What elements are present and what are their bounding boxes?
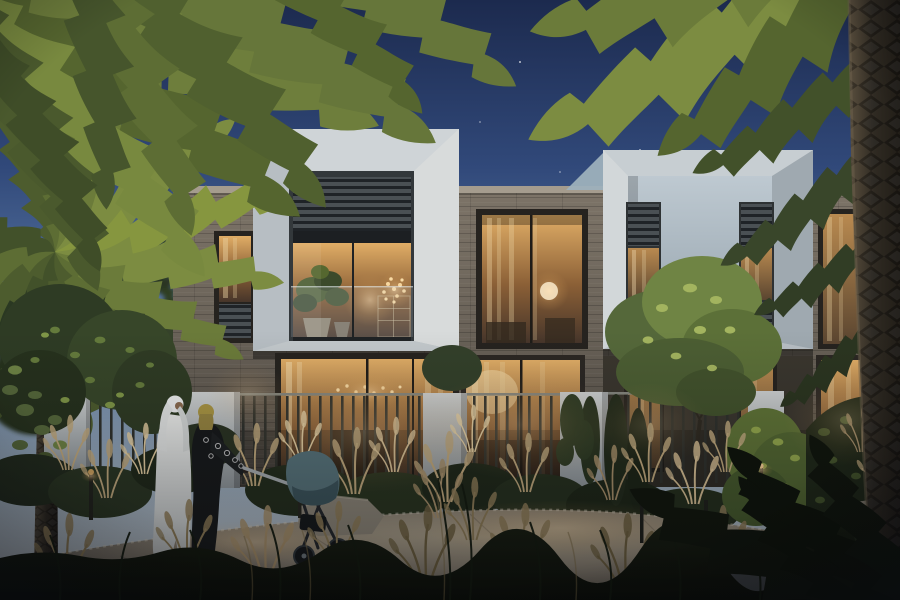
- vignette: [0, 0, 900, 600]
- townhouse-rendering: Twilight architectural rendering of two …: [0, 0, 900, 600]
- scene-stage: Twilight architectural rendering of two …: [0, 0, 900, 600]
